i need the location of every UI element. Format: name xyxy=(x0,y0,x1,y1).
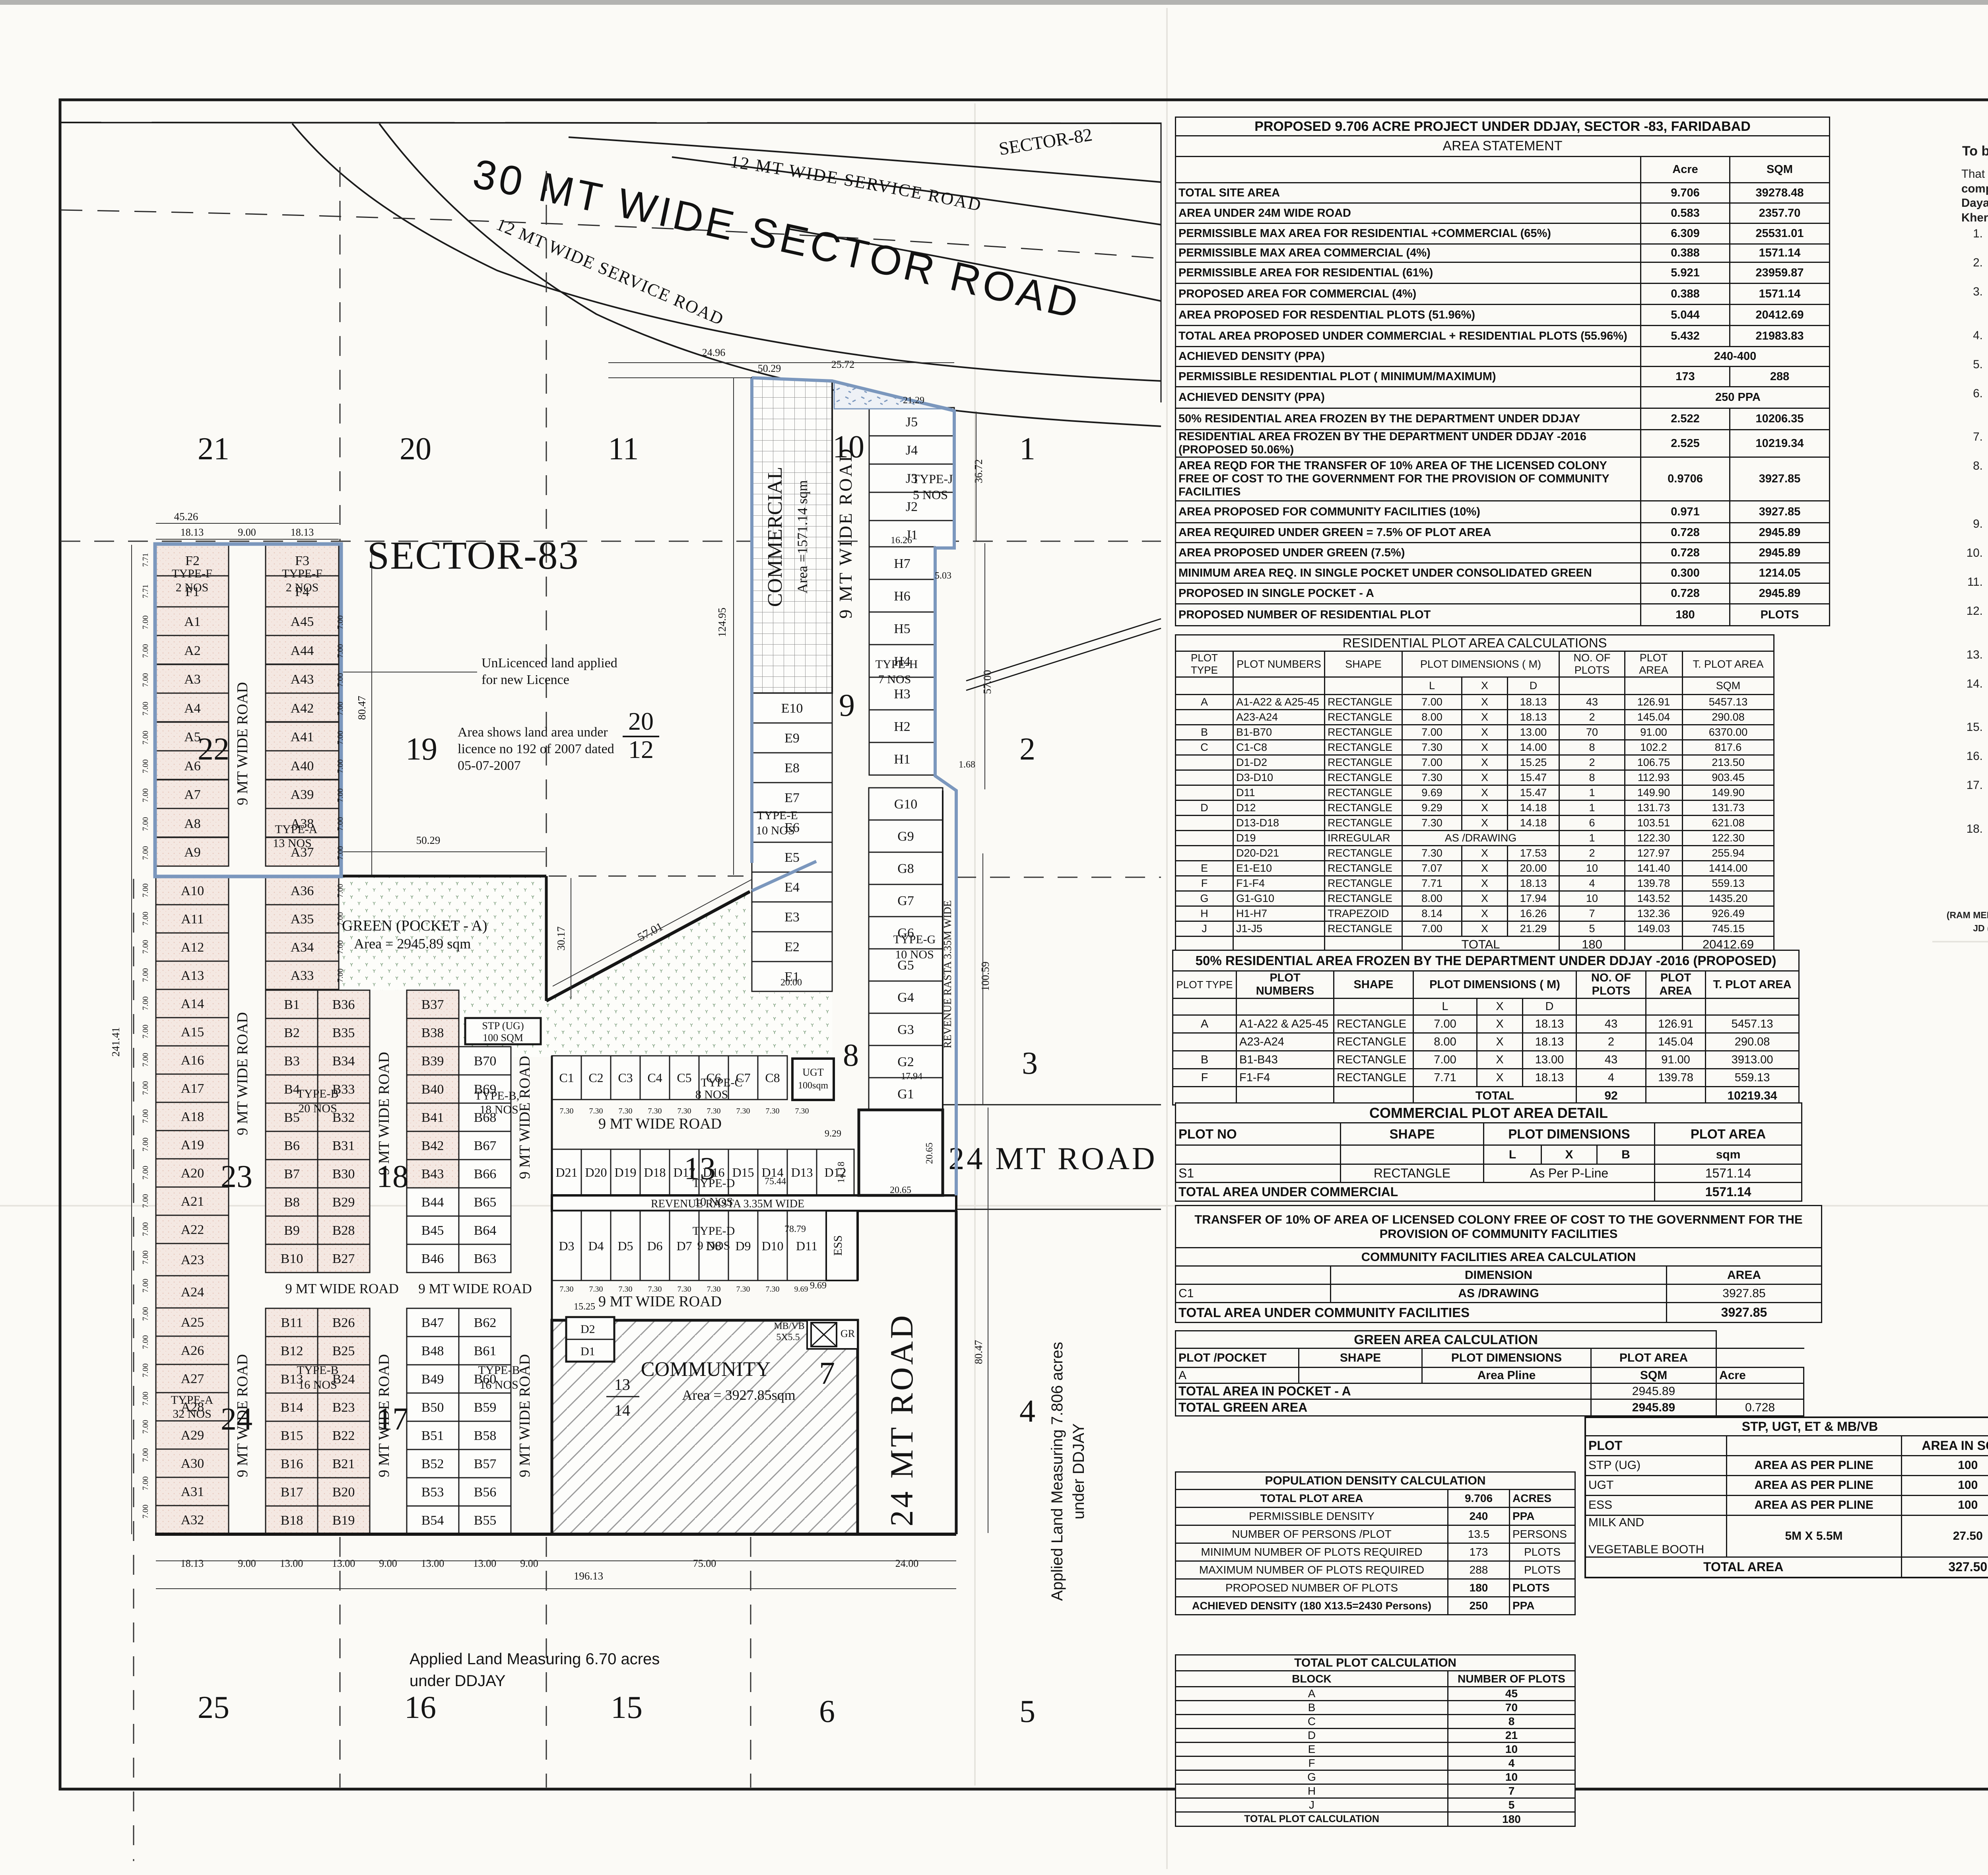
svg-text:B36: B36 xyxy=(332,997,355,1012)
svg-text:A3: A3 xyxy=(184,672,201,687)
svg-text:TYPE-E: TYPE-E xyxy=(757,809,798,822)
svg-text:10 NOS: 10 NOS xyxy=(756,824,795,837)
svg-text:TYPE-A: TYPE-A xyxy=(275,823,318,836)
svg-text:G1: G1 xyxy=(897,1087,914,1102)
svg-text:A17: A17 xyxy=(181,1081,204,1096)
svg-text:C5: C5 xyxy=(677,1071,691,1085)
svg-text:A18: A18 xyxy=(181,1109,204,1124)
svg-text:7.00: 7.00 xyxy=(141,673,150,687)
svg-text:7.00: 7.00 xyxy=(141,912,150,926)
svg-text:7.00: 7.00 xyxy=(141,884,150,898)
svg-text:TYPE-G: TYPE-G xyxy=(893,933,936,946)
svg-text:8: 8 xyxy=(843,1038,859,1073)
svg-text:E8: E8 xyxy=(784,761,800,775)
svg-text:Area shows land area under: Area shows land area under xyxy=(458,725,608,740)
svg-text:9 NOS: 9 NOS xyxy=(697,1239,730,1252)
svg-text:D11: D11 xyxy=(796,1239,817,1253)
svg-text:1: 1 xyxy=(1019,431,1035,466)
svg-text:100 SQM: 100 SQM xyxy=(483,1032,523,1043)
svg-text:19: 19 xyxy=(406,732,437,767)
svg-text:50.29: 50.29 xyxy=(758,363,781,374)
svg-text:B46: B46 xyxy=(421,1251,444,1266)
svg-text:B66: B66 xyxy=(474,1167,497,1181)
svg-text:20: 20 xyxy=(628,707,654,735)
svg-text:1.68: 1.68 xyxy=(959,760,975,770)
svg-text:A15: A15 xyxy=(181,1025,204,1040)
svg-text:G10: G10 xyxy=(894,797,918,812)
svg-text:B50: B50 xyxy=(421,1400,444,1415)
svg-text:18: 18 xyxy=(377,1159,408,1194)
svg-text:7.00: 7.00 xyxy=(336,731,345,745)
svg-text:7.00: 7.00 xyxy=(141,1392,150,1406)
svg-text:7.00: 7.00 xyxy=(336,884,345,898)
svg-text:TYPE-F: TYPE-F xyxy=(282,567,322,580)
svg-text:D9: D9 xyxy=(735,1239,751,1253)
svg-text:25.72: 25.72 xyxy=(831,359,855,370)
svg-text:B39: B39 xyxy=(421,1054,444,1069)
svg-text:G2: G2 xyxy=(897,1055,914,1069)
svg-text:D6: D6 xyxy=(647,1239,662,1253)
svg-text:TYPE-B: TYPE-B xyxy=(297,1087,339,1100)
svg-text:100sqm: 100sqm xyxy=(798,1080,828,1091)
svg-text:9 MT WIDE ROAD: 9 MT WIDE ROAD xyxy=(835,447,856,618)
svg-text:H5: H5 xyxy=(894,622,911,636)
svg-text:D4: D4 xyxy=(588,1239,604,1253)
svg-text:A45: A45 xyxy=(291,614,314,629)
svg-text:GREEN (POCKET - A): GREEN (POCKET - A) xyxy=(342,917,487,934)
svg-text:7.00: 7.00 xyxy=(141,1081,150,1095)
svg-text:9.69: 9.69 xyxy=(810,1280,827,1291)
svg-text:ESS: ESS xyxy=(831,1235,845,1256)
svg-text:16.26: 16.26 xyxy=(891,535,912,546)
svg-text:B15: B15 xyxy=(281,1428,303,1443)
svg-text:Area =1571.14 sqm: Area =1571.14 sqm xyxy=(794,480,810,593)
svg-text:7.30: 7.30 xyxy=(589,1285,603,1294)
svg-text:B22: B22 xyxy=(332,1428,355,1443)
svg-text:G9: G9 xyxy=(897,829,914,844)
svg-text:24.00: 24.00 xyxy=(895,1558,919,1569)
svg-text:18.13: 18.13 xyxy=(181,1558,204,1569)
svg-text:SECTOR-82: SECTOR-82 xyxy=(998,124,1094,159)
svg-text:6: 6 xyxy=(819,1694,835,1729)
svg-text:7.00: 7.00 xyxy=(141,1251,150,1265)
svg-text:17.94: 17.94 xyxy=(901,1071,922,1082)
svg-text:B11: B11 xyxy=(281,1315,303,1330)
svg-text:7.30: 7.30 xyxy=(707,1107,721,1115)
svg-text:A39: A39 xyxy=(291,787,314,802)
svg-text:A23: A23 xyxy=(181,1253,204,1267)
svg-text:7.00: 7.00 xyxy=(141,1420,150,1434)
svg-text:45.26: 45.26 xyxy=(174,511,198,523)
svg-text:14.18: 14.18 xyxy=(836,1162,846,1183)
svg-text:B29: B29 xyxy=(332,1195,355,1210)
svg-text:7.00: 7.00 xyxy=(141,940,150,954)
svg-text:7.30: 7.30 xyxy=(736,1107,750,1115)
svg-text:24: 24 xyxy=(221,1402,252,1437)
svg-text:A35: A35 xyxy=(291,912,314,927)
svg-text:STP (UG): STP (UG) xyxy=(482,1020,524,1032)
svg-text:15: 15 xyxy=(611,1690,643,1725)
svg-text:G8: G8 xyxy=(897,861,914,876)
svg-text:B30: B30 xyxy=(332,1167,355,1181)
svg-text:7.30: 7.30 xyxy=(795,1107,809,1115)
svg-text:7.00: 7.00 xyxy=(141,817,150,831)
svg-text:7 NOS: 7 NOS xyxy=(878,673,911,686)
svg-text:7.00: 7.00 xyxy=(141,1109,150,1123)
svg-text:7.00: 7.00 xyxy=(336,702,345,716)
svg-text:7.00: 7.00 xyxy=(336,616,345,630)
svg-text:9.00: 9.00 xyxy=(238,1558,256,1569)
svg-text:D20: D20 xyxy=(585,1165,607,1179)
svg-text:H6: H6 xyxy=(894,589,911,604)
svg-text:B49: B49 xyxy=(421,1372,444,1387)
svg-text:UGT: UGT xyxy=(802,1067,824,1078)
svg-text:14: 14 xyxy=(614,1401,630,1419)
svg-text:TYPE-B,: TYPE-B, xyxy=(475,1089,520,1102)
svg-text:Area = 2945.89 sqm: Area = 2945.89 sqm xyxy=(354,936,471,952)
svg-text:E10: E10 xyxy=(781,701,803,716)
svg-text:A25: A25 xyxy=(181,1315,204,1330)
svg-text:J5: J5 xyxy=(906,415,918,429)
svg-text:7.00: 7.00 xyxy=(336,846,345,860)
svg-text:12: 12 xyxy=(628,735,654,764)
svg-text:B6: B6 xyxy=(284,1139,300,1153)
svg-text:5.03: 5.03 xyxy=(935,571,951,581)
svg-text:7.00: 7.00 xyxy=(141,997,150,1010)
svg-text:H3: H3 xyxy=(894,687,911,701)
svg-text:22: 22 xyxy=(198,732,229,767)
svg-text:75.00: 75.00 xyxy=(693,1558,716,1569)
svg-text:8 NOS: 8 NOS xyxy=(695,1088,728,1101)
svg-text:A36: A36 xyxy=(291,884,314,898)
svg-text:7.00: 7.00 xyxy=(336,760,345,773)
svg-text:E2: E2 xyxy=(784,940,800,954)
svg-text:B7: B7 xyxy=(284,1167,300,1181)
svg-text:7.00: 7.00 xyxy=(336,789,345,802)
svg-text:H2: H2 xyxy=(894,719,911,734)
svg-text:B47: B47 xyxy=(421,1315,444,1330)
svg-text:7.00: 7.00 xyxy=(336,969,345,983)
svg-text:F3: F3 xyxy=(295,554,309,568)
svg-text:B23: B23 xyxy=(332,1400,355,1415)
svg-text:7.30: 7.30 xyxy=(707,1285,721,1294)
svg-text:16 NOS: 16 NOS xyxy=(298,1378,337,1391)
svg-text:9.29: 9.29 xyxy=(825,1129,841,1139)
svg-text:13.00: 13.00 xyxy=(421,1558,445,1569)
svg-text:13.00: 13.00 xyxy=(473,1558,497,1569)
svg-text:7.30: 7.30 xyxy=(589,1107,603,1115)
svg-text:B28: B28 xyxy=(332,1223,355,1238)
svg-text:7.30: 7.30 xyxy=(619,1107,633,1115)
svg-text:A42: A42 xyxy=(291,701,314,716)
svg-text:E5: E5 xyxy=(784,850,800,865)
svg-text:under DDJAY: under DDJAY xyxy=(1070,1423,1087,1519)
svg-text:B5: B5 xyxy=(284,1110,300,1125)
svg-text:J4: J4 xyxy=(906,443,918,458)
svg-text:A31: A31 xyxy=(181,1484,204,1499)
svg-text:B35: B35 xyxy=(332,1026,355,1040)
svg-text:B31: B31 xyxy=(332,1139,355,1153)
svg-text:C2: C2 xyxy=(588,1071,603,1085)
svg-text:7.00: 7.00 xyxy=(141,1194,150,1208)
svg-text:10 NOS: 10 NOS xyxy=(895,948,934,961)
svg-text:21: 21 xyxy=(198,431,229,466)
svg-text:B9: B9 xyxy=(284,1223,300,1238)
svg-text:80.47: 80.47 xyxy=(973,1340,984,1364)
svg-text:B1: B1 xyxy=(284,997,300,1012)
svg-text:B57: B57 xyxy=(474,1457,497,1471)
svg-text:7.30: 7.30 xyxy=(560,1285,574,1294)
svg-text:78.79: 78.79 xyxy=(784,1224,806,1234)
svg-text:B55: B55 xyxy=(474,1513,497,1528)
svg-text:18.13: 18.13 xyxy=(291,527,314,538)
svg-text:B38: B38 xyxy=(421,1026,444,1040)
svg-text:7.30: 7.30 xyxy=(678,1285,691,1294)
svg-text:D13: D13 xyxy=(791,1165,813,1179)
svg-text:B19: B19 xyxy=(332,1513,355,1528)
svg-text:B21: B21 xyxy=(332,1457,355,1471)
svg-text:B25: B25 xyxy=(332,1344,355,1358)
svg-text:COMMUNITY: COMMUNITY xyxy=(641,1358,771,1381)
svg-text:7.00: 7.00 xyxy=(336,940,345,954)
svg-text:7.00: 7.00 xyxy=(141,1335,150,1349)
svg-text:B44: B44 xyxy=(421,1195,444,1210)
svg-text:A16: A16 xyxy=(181,1053,204,1068)
svg-text:9 MT WIDE ROAD: 9 MT WIDE ROAD xyxy=(598,1293,722,1310)
svg-text:13: 13 xyxy=(684,1151,716,1186)
svg-text:3: 3 xyxy=(1022,1046,1038,1081)
svg-text:B53: B53 xyxy=(421,1485,444,1500)
svg-text:B37: B37 xyxy=(421,997,444,1012)
svg-text:B8: B8 xyxy=(284,1195,300,1210)
svg-text:A30: A30 xyxy=(181,1456,204,1471)
svg-text:7.00: 7.00 xyxy=(141,846,150,860)
svg-text:C1: C1 xyxy=(559,1071,574,1085)
svg-text:B59: B59 xyxy=(474,1400,497,1415)
svg-text:TYPE-F: TYPE-F xyxy=(172,567,212,580)
svg-text:13 NOS: 13 NOS xyxy=(273,837,312,850)
svg-text:5: 5 xyxy=(1019,1694,1035,1729)
svg-text:A43: A43 xyxy=(291,672,314,687)
svg-text:MB/VB: MB/VB xyxy=(774,1321,804,1331)
svg-text:C3: C3 xyxy=(618,1071,633,1085)
svg-text:B40: B40 xyxy=(421,1082,444,1097)
svg-text:B18: B18 xyxy=(281,1513,303,1528)
svg-text:B64: B64 xyxy=(474,1223,497,1238)
svg-text:21.29: 21.29 xyxy=(903,395,924,406)
svg-text:Applied Land Measuring 7.806 a: Applied Land Measuring 7.806 acres xyxy=(1048,1342,1066,1601)
svg-text:7.00: 7.00 xyxy=(141,1279,150,1293)
svg-text:100.59: 100.59 xyxy=(979,962,991,991)
svg-text:10: 10 xyxy=(833,429,864,464)
svg-text:B62: B62 xyxy=(474,1315,497,1330)
svg-text:11: 11 xyxy=(608,431,639,466)
svg-text:9 MT WIDE ROAD: 9 MT WIDE ROAD xyxy=(598,1115,722,1132)
svg-text:7.30: 7.30 xyxy=(766,1107,780,1115)
svg-text:COMMERCIAL: COMMERCIAL xyxy=(764,467,786,607)
svg-text:D5: D5 xyxy=(617,1239,633,1253)
svg-text:18.13: 18.13 xyxy=(181,527,204,538)
svg-text:7.30: 7.30 xyxy=(560,1107,574,1115)
svg-text:for new Licence: for new Licence xyxy=(481,672,569,687)
svg-text:B45: B45 xyxy=(421,1223,444,1238)
svg-text:TYPE-B: TYPE-B xyxy=(478,1364,520,1377)
svg-text:7.30: 7.30 xyxy=(648,1107,662,1115)
svg-text:05-07-2007: 05-07-2007 xyxy=(458,758,521,773)
svg-text:7.00: 7.00 xyxy=(336,673,345,687)
svg-text:A13: A13 xyxy=(181,968,204,983)
svg-text:A26: A26 xyxy=(181,1343,204,1358)
svg-text:C8: C8 xyxy=(765,1071,780,1085)
svg-text:20.65: 20.65 xyxy=(890,1185,911,1195)
svg-text:B3: B3 xyxy=(284,1054,300,1069)
svg-text:A2: A2 xyxy=(184,643,201,658)
svg-text:B2: B2 xyxy=(284,1026,300,1040)
svg-text:32 NOS: 32 NOS xyxy=(173,1407,212,1420)
svg-text:9 MT WIDE ROAD: 9 MT WIDE ROAD xyxy=(516,1354,533,1477)
svg-text:A22: A22 xyxy=(181,1222,204,1237)
svg-text:B58: B58 xyxy=(474,1428,497,1443)
svg-text:D7: D7 xyxy=(676,1239,692,1253)
svg-text:TYPE-C: TYPE-C xyxy=(701,1076,743,1089)
svg-text:7.00: 7.00 xyxy=(141,1307,150,1321)
svg-text:B41: B41 xyxy=(421,1110,444,1125)
svg-text:D21: D21 xyxy=(555,1165,577,1179)
svg-text:13: 13 xyxy=(614,1376,630,1393)
svg-text:A29: A29 xyxy=(181,1428,204,1443)
svg-text:20.00: 20.00 xyxy=(780,977,802,988)
svg-text:7.00: 7.00 xyxy=(141,1053,150,1067)
svg-text:7.00: 7.00 xyxy=(141,1166,150,1180)
svg-text:13.00: 13.00 xyxy=(280,1558,303,1569)
svg-text:241.41: 241.41 xyxy=(110,1027,122,1057)
svg-text:196.13: 196.13 xyxy=(574,1570,603,1582)
svg-text:7.30: 7.30 xyxy=(736,1285,750,1294)
svg-text:licence no 192 of 2007 dated: licence no 192 of 2007 dated xyxy=(458,742,614,756)
svg-text:B56: B56 xyxy=(474,1485,497,1500)
svg-text:E9: E9 xyxy=(784,731,800,746)
svg-text:10 NOS: 10 NOS xyxy=(694,1195,733,1209)
svg-text:13.00: 13.00 xyxy=(332,1558,355,1569)
svg-text:B27: B27 xyxy=(332,1251,355,1266)
svg-text:B67: B67 xyxy=(474,1139,497,1153)
svg-text:16 NOS: 16 NOS xyxy=(480,1378,518,1391)
svg-text:7.30: 7.30 xyxy=(619,1285,633,1294)
svg-text:Area = 3927.85sqm: Area = 3927.85sqm xyxy=(682,1387,795,1403)
svg-text:A10: A10 xyxy=(181,884,204,898)
svg-text:D19: D19 xyxy=(614,1165,636,1179)
svg-text:7.00: 7.00 xyxy=(141,1025,150,1039)
svg-text:A14: A14 xyxy=(181,997,204,1011)
svg-text:A24: A24 xyxy=(181,1285,204,1300)
svg-text:F2: F2 xyxy=(185,554,200,568)
svg-text:7.00: 7.00 xyxy=(141,1222,150,1236)
svg-text:7.00: 7.00 xyxy=(141,1138,150,1152)
svg-text:17: 17 xyxy=(377,1402,408,1437)
svg-text:7.00: 7.00 xyxy=(141,760,150,773)
svg-text:UnLicenced land applied: UnLicenced land applied xyxy=(481,656,617,670)
svg-text:A8: A8 xyxy=(184,816,201,831)
svg-text:A44: A44 xyxy=(291,643,314,658)
svg-text:H7: H7 xyxy=(894,556,911,571)
svg-text:A21: A21 xyxy=(181,1194,204,1209)
svg-text:B43: B43 xyxy=(421,1167,444,1181)
svg-text:7.00: 7.00 xyxy=(141,1448,150,1462)
svg-text:TYPE-B: TYPE-B xyxy=(297,1364,339,1377)
svg-text:23: 23 xyxy=(221,1159,252,1194)
svg-text:B52: B52 xyxy=(421,1457,444,1471)
svg-text:9.00: 9.00 xyxy=(520,1558,538,1569)
svg-text:24 MT ROAD: 24 MT ROAD xyxy=(948,1141,1157,1176)
svg-text:E3: E3 xyxy=(784,910,800,925)
svg-text:7.00: 7.00 xyxy=(141,731,150,745)
svg-text:B65: B65 xyxy=(474,1195,497,1210)
svg-text:B51: B51 xyxy=(421,1428,444,1443)
svg-text:A9: A9 xyxy=(184,845,201,860)
svg-text:7: 7 xyxy=(819,1356,835,1391)
svg-text:Applied Land Measuring 6.70 ac: Applied Land Measuring 6.70 acres xyxy=(410,1650,660,1668)
svg-text:A32: A32 xyxy=(181,1513,204,1527)
svg-text:12 MT WIDE SERVICE ROAD: 12 MT WIDE SERVICE ROAD xyxy=(729,152,984,215)
svg-text:9 MT WIDE ROAD: 9 MT WIDE ROAD xyxy=(234,1012,251,1135)
svg-text:A34: A34 xyxy=(291,940,314,955)
svg-text:A27: A27 xyxy=(181,1372,204,1386)
svg-text:TYPE-H: TYPE-H xyxy=(876,658,918,671)
svg-text:SECTOR-83: SECTOR-83 xyxy=(367,533,579,577)
svg-text:7.00: 7.00 xyxy=(141,702,150,716)
svg-text:TYPE-J: TYPE-J xyxy=(912,472,953,486)
svg-text:2: 2 xyxy=(1019,732,1035,767)
svg-text:20 NOS: 20 NOS xyxy=(298,1102,337,1115)
svg-text:4: 4 xyxy=(1019,1394,1035,1429)
svg-text:B54: B54 xyxy=(421,1513,444,1528)
svg-text:A7: A7 xyxy=(184,787,201,802)
svg-text:18 NOS: 18 NOS xyxy=(480,1103,518,1116)
svg-text:7.00: 7.00 xyxy=(141,616,150,630)
svg-text:7.71: 7.71 xyxy=(141,585,150,598)
svg-text:9 MT WIDE ROAD: 9 MT WIDE ROAD xyxy=(285,1281,399,1296)
svg-text:TYPE-A: TYPE-A xyxy=(171,1393,214,1407)
svg-text:7.30: 7.30 xyxy=(766,1285,780,1294)
svg-text:B12: B12 xyxy=(281,1344,303,1358)
svg-text:7.00: 7.00 xyxy=(141,1477,150,1490)
svg-text:75.44: 75.44 xyxy=(765,1176,786,1187)
svg-text:E7: E7 xyxy=(784,791,800,805)
svg-text:50.29: 50.29 xyxy=(416,834,441,846)
svg-text:2 NOS: 2 NOS xyxy=(286,581,319,594)
svg-text:G3: G3 xyxy=(897,1022,914,1037)
svg-text:5 NOS: 5 NOS xyxy=(913,488,948,502)
svg-text:20: 20 xyxy=(400,431,431,466)
svg-text:A20: A20 xyxy=(181,1166,204,1181)
svg-text:B26: B26 xyxy=(332,1315,355,1330)
svg-text:under DDJAY: under DDJAY xyxy=(410,1672,506,1690)
svg-text:TYPE-D: TYPE-D xyxy=(693,1224,735,1238)
svg-text:24.96: 24.96 xyxy=(702,347,726,358)
svg-text:B10: B10 xyxy=(281,1251,303,1266)
svg-text:D10: D10 xyxy=(761,1239,783,1253)
svg-text:7.00: 7.00 xyxy=(336,644,345,658)
svg-text:7.71: 7.71 xyxy=(141,553,150,567)
svg-text:A11: A11 xyxy=(181,912,204,927)
svg-text:36.72: 36.72 xyxy=(973,459,984,484)
svg-text:B20: B20 xyxy=(332,1485,355,1500)
svg-text:B17: B17 xyxy=(281,1485,303,1500)
svg-text:B34: B34 xyxy=(332,1054,355,1069)
svg-text:80.47: 80.47 xyxy=(356,696,368,720)
svg-text:30.17: 30.17 xyxy=(555,927,567,951)
svg-text:57.00: 57.00 xyxy=(981,670,993,694)
